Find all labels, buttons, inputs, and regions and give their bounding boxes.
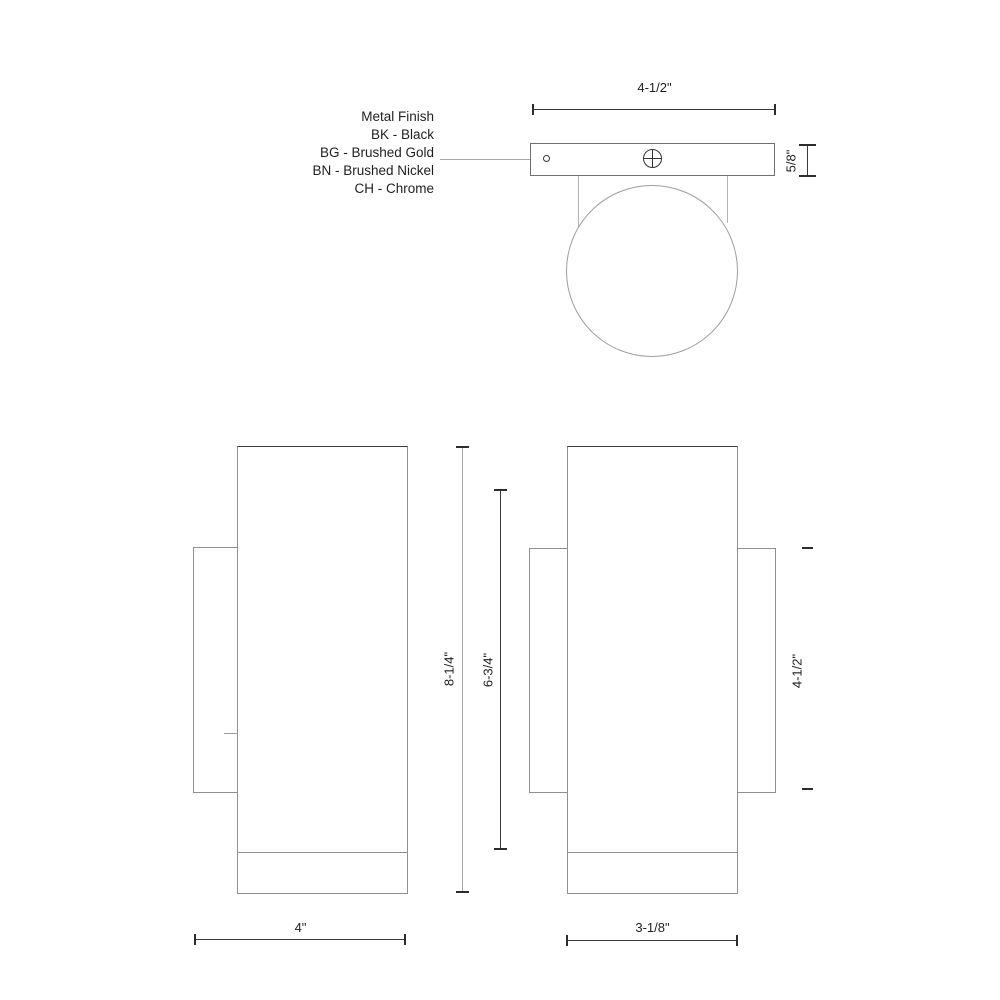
side-depth-dim-label: 4" <box>195 920 406 935</box>
legend-leader-line <box>440 159 542 160</box>
finish-legend: Metal Finish BK - Black BG - Brushed Gol… <box>280 108 434 198</box>
front-view-backplate-right <box>737 548 776 793</box>
body-height-dim-line <box>500 490 501 850</box>
plate-thickness-dim-tick-top <box>799 144 816 146</box>
side-depth-dim-tick-right <box>404 934 406 945</box>
side-view-seam-mark <box>224 733 238 734</box>
side-depth-dim-line <box>195 939 406 940</box>
backplate-height-dim-tick-top <box>802 547 813 549</box>
top-view-cylinder-circle <box>566 185 738 357</box>
finish-option-brushed-gold: BG - Brushed Gold <box>280 144 434 162</box>
side-view-backplate <box>193 547 238 793</box>
plate-thickness-dim-label: 5/8" <box>784 150 799 173</box>
front-width-dim-tick-right <box>736 935 738 946</box>
drawing-sheet: Metal Finish BK - Black BG - Brushed Gol… <box>0 0 1000 1000</box>
top-width-dim-tick-left <box>532 104 534 115</box>
side-view-bottom-cap-seam <box>237 852 408 853</box>
mounting-hole-icon <box>543 155 550 162</box>
plate-thickness-dim-tick-bottom <box>799 175 816 177</box>
top-width-dim-label: 4-1/2" <box>533 80 776 95</box>
side-depth-dim-tick-left <box>194 934 196 945</box>
top-view-stem-right <box>727 176 728 223</box>
overall-height-dim-label: 8-1/4" <box>442 652 457 686</box>
backplate-height-dim-label: 4-1/2" <box>790 654 805 688</box>
finish-legend-title: Metal Finish <box>280 108 434 126</box>
top-view-stem-left <box>578 176 579 228</box>
body-height-dim-tick-top <box>494 489 507 491</box>
front-width-dim-label: 3-1/8" <box>567 920 738 935</box>
backplate-height-dim-tick-bottom <box>802 788 813 790</box>
front-view-backplate-left <box>529 548 568 793</box>
top-width-dim-line <box>533 109 776 110</box>
finish-option-chrome: CH - Chrome <box>280 180 434 198</box>
top-width-dim-tick-right <box>774 104 776 115</box>
screw-head-icon <box>643 149 662 168</box>
overall-height-dim-tick-top <box>456 446 469 448</box>
screw-cross-vertical <box>652 150 654 167</box>
plate-thickness-dim-line <box>807 145 808 177</box>
finish-option-brushed-nickel: BN - Brushed Nickel <box>280 162 434 180</box>
body-height-dim-tick-bottom <box>494 848 507 850</box>
overall-height-dim-line <box>462 447 463 893</box>
finish-option-black: BK - Black <box>280 126 434 144</box>
front-width-dim-tick-left <box>566 935 568 946</box>
front-view-bottom-cap-seam <box>567 852 738 853</box>
side-view-body <box>237 446 408 894</box>
front-width-dim-line <box>567 940 738 941</box>
front-view-body <box>567 446 738 894</box>
body-height-dim-label: 6-3/4" <box>481 653 496 687</box>
overall-height-dim-tick-bottom <box>456 891 469 893</box>
